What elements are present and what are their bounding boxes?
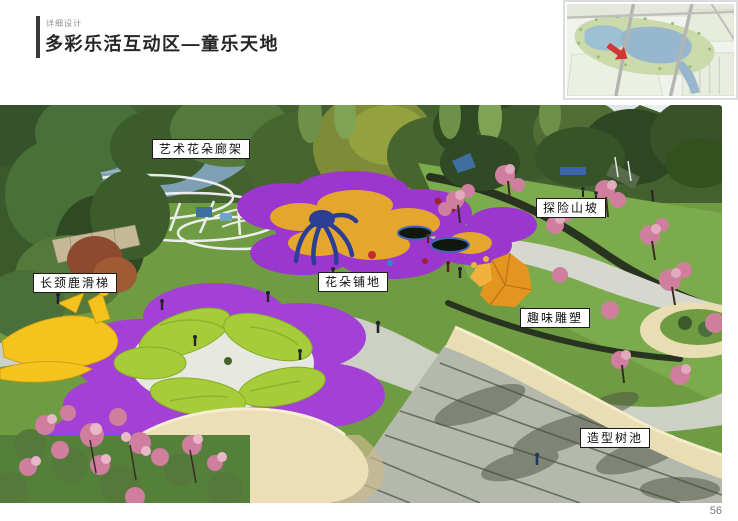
location-minimap bbox=[563, 0, 738, 100]
title-accent-bar bbox=[36, 16, 40, 58]
callout-flower-paving: 花朵铺地 bbox=[318, 272, 388, 292]
callout-shaped-tree-pool: 造型树池 bbox=[580, 428, 650, 448]
callout-adventure-hill: 探险山坡 bbox=[536, 198, 606, 218]
callout-art-flower-pergola: 艺术花朵廊架 bbox=[152, 139, 250, 159]
perspective-render: 艺术花朵廊架 探险山坡 长颈鹿滑梯 花朵铺地 趣味雕塑 造型树池 bbox=[0, 105, 722, 503]
eyebrow-text: 详细设计 bbox=[46, 18, 82, 29]
minimap-plan bbox=[567, 4, 734, 96]
callout-giraffe-slide: 长颈鹿滑梯 bbox=[33, 273, 117, 293]
page-number: 56 bbox=[710, 505, 722, 517]
callout-fun-sculpture: 趣味雕塑 bbox=[520, 308, 590, 328]
page-title: 多彩乐活互动区—童乐天地 bbox=[45, 30, 279, 56]
